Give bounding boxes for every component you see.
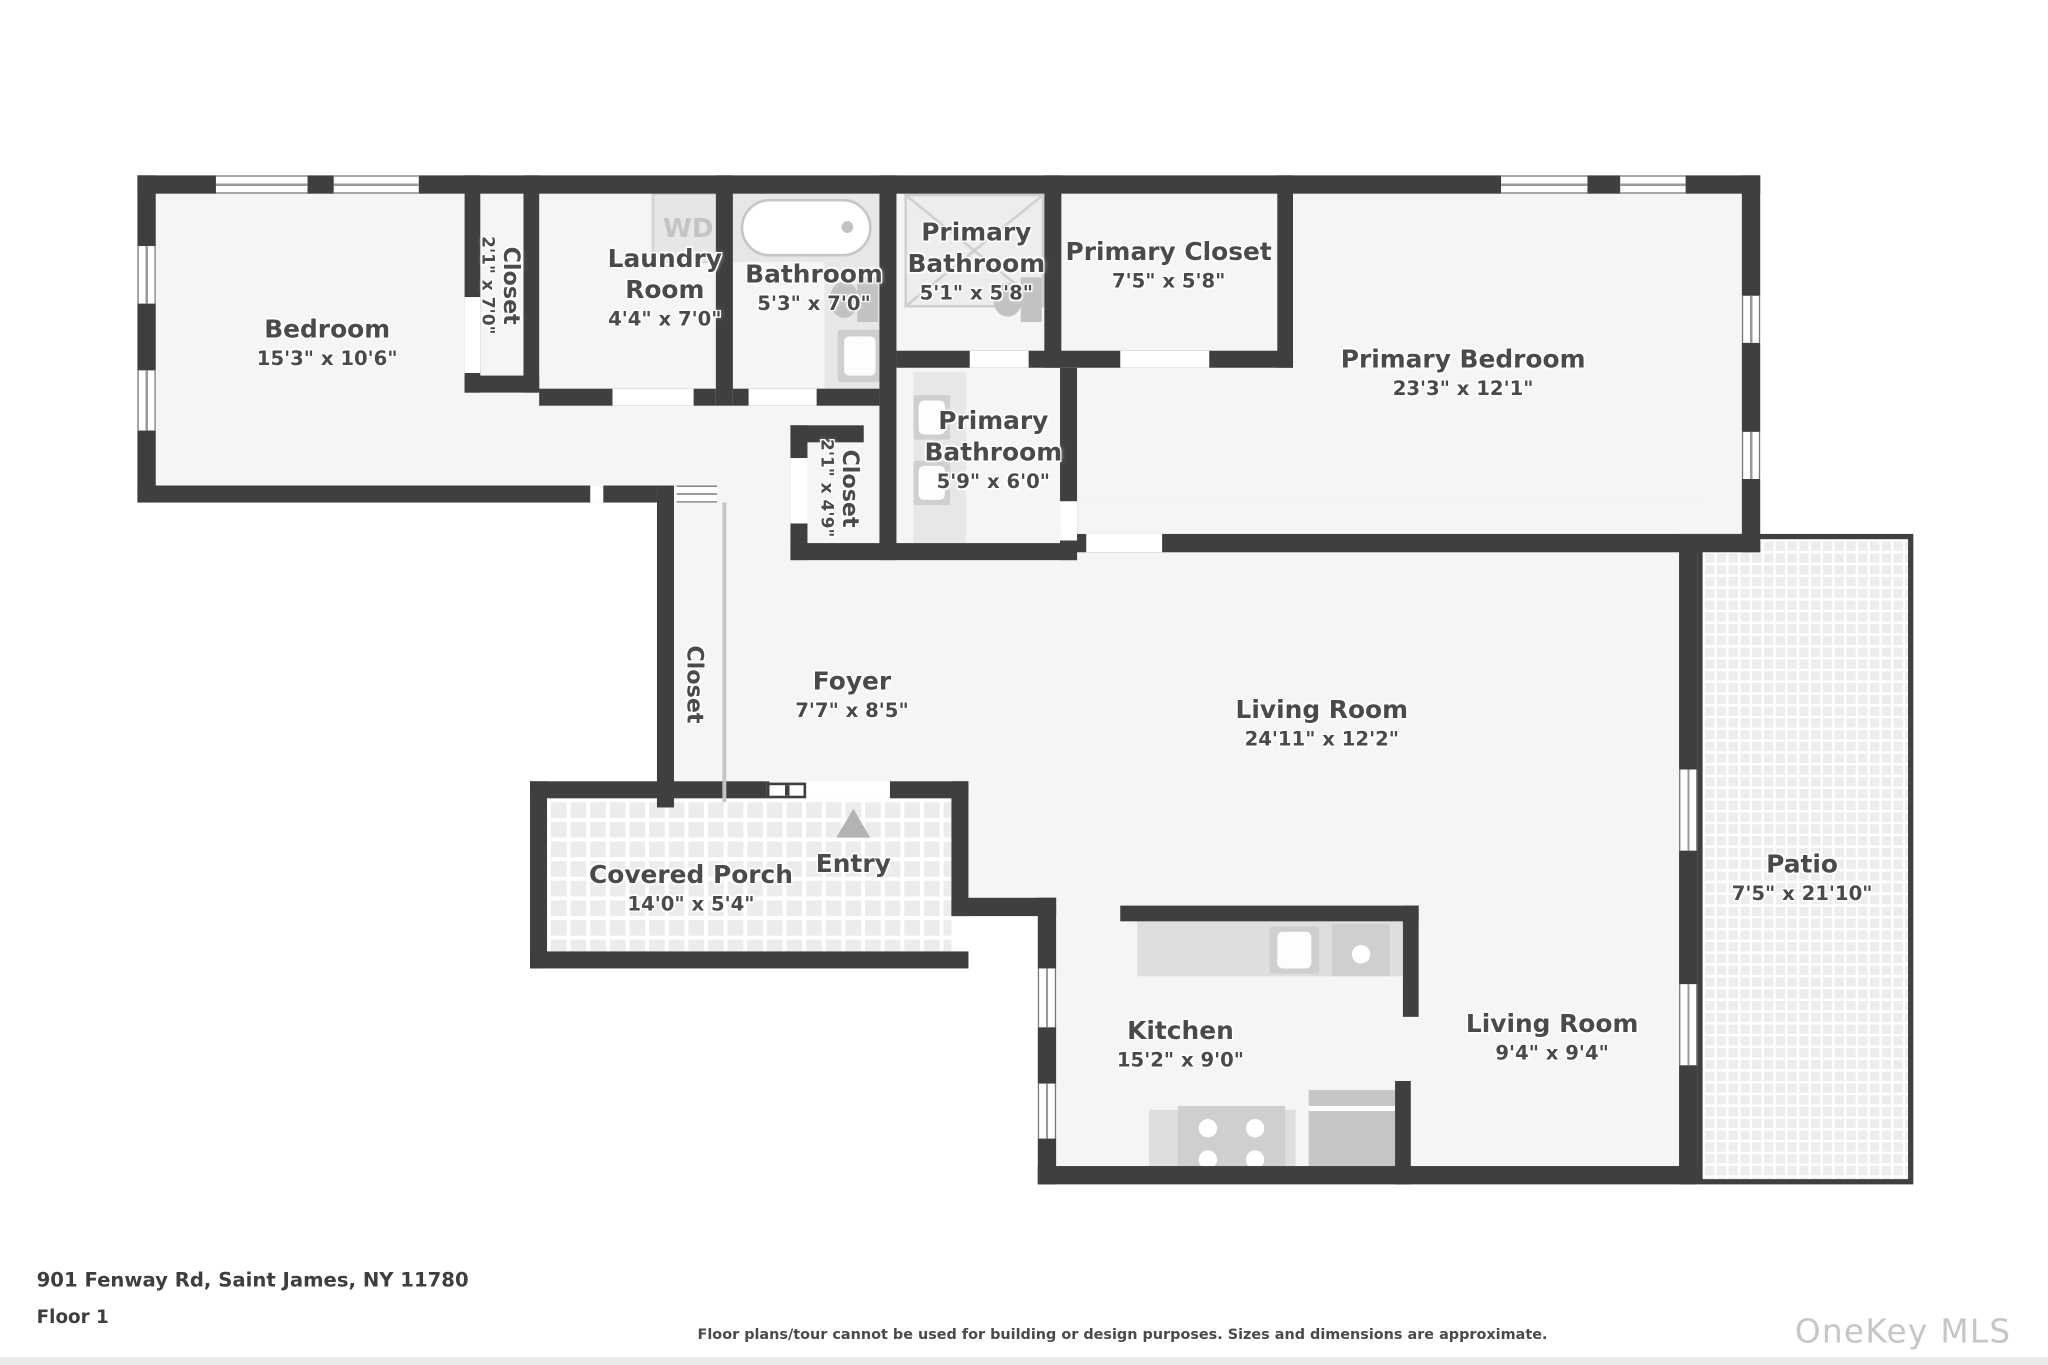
room-label-primary-bathroom-lower: Primary Bathroom 5'9" x 6'0" [915, 407, 1072, 494]
kitchen-sink-icon [1269, 927, 1319, 974]
window [677, 486, 718, 503]
room-label-foyer: Foyer 7'7" x 8'5" [795, 667, 908, 723]
window [137, 370, 155, 430]
room-label-primary-bedroom: Primary Bedroom 23'3" x 12'1" [1341, 345, 1586, 401]
room-label-living-room: Living Room 24'11" x 12'2" [1236, 696, 1408, 752]
floor-label: Floor 1 [37, 1307, 109, 1328]
room-label-covered-porch: Covered Porch 14'0" x 5'4" [589, 861, 793, 917]
window [1679, 984, 1697, 1065]
window [216, 175, 308, 193]
watermark-logo: OneKey MLS [1795, 1313, 2012, 1351]
room-label-primary-bathroom-upper: Primary Bathroom 5'1" x 5'8" [903, 218, 1050, 305]
disclaimer-text: Floor plans/tour cannot be used for buil… [698, 1326, 1548, 1343]
window [1038, 1084, 1056, 1139]
room-label-hall-closet: Closet 2'1" x 4'9" [815, 439, 862, 537]
window [137, 246, 155, 304]
window [1501, 175, 1587, 193]
window [1038, 968, 1056, 1027]
room-label-living-room-2: Living Room 9'4" x 9'4" [1466, 1010, 1638, 1066]
room-label-bedroom-closet: Closet 2'1" x 7'0" [476, 236, 523, 334]
room-label-laundry: Laundry Room 4'4" x 7'0" [599, 245, 730, 332]
window [334, 175, 419, 193]
floorplan-canvas: WD [0, 0, 2048, 1365]
bathroom-sink-icon [838, 330, 882, 382]
room-label-patio: Patio 7'5" x 21'10" [1732, 850, 1873, 906]
window [1679, 770, 1697, 851]
bathtub-faucet-icon [841, 221, 853, 233]
address-text: 901 Fenway Rd, Saint James, NY 11780 [37, 1268, 469, 1292]
room-label-bedroom: Bedroom 15'3" x 10'6" [257, 315, 398, 371]
room-label-entry: Entry [816, 850, 891, 881]
footer-divider [0, 1357, 2048, 1365]
window [1620, 175, 1685, 193]
room-label-primary-closet: Primary Closet 7'5" x 5'8" [1066, 238, 1272, 294]
room-label-bathroom: Bathroom 5'3" x 7'0" [745, 260, 883, 316]
room-label-kitchen: Kitchen 15'2" x 9'0" [1117, 1017, 1244, 1073]
window [1742, 296, 1760, 343]
room-label-foyer-closet: Closet [680, 645, 707, 723]
entry-arrow-icon [836, 809, 870, 838]
entry-door-icon [767, 783, 806, 799]
dishwasher-icon [1332, 924, 1390, 976]
window [1742, 432, 1760, 479]
